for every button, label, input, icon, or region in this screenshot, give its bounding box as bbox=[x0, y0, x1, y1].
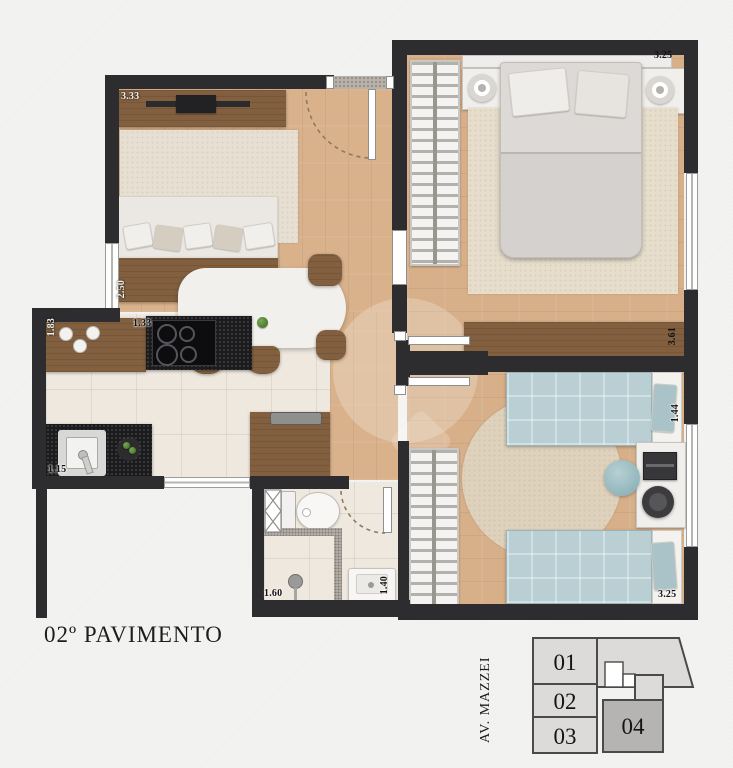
bedroom1-dresser bbox=[464, 322, 684, 359]
toilet-tank bbox=[281, 491, 296, 532]
dim-bath-width: 1.60 bbox=[264, 589, 282, 599]
entry-door-leaf bbox=[368, 89, 376, 160]
sliding-door-jamb-bottom bbox=[394, 385, 406, 395]
entry-threshold bbox=[334, 76, 392, 89]
mug bbox=[59, 327, 73, 341]
wall-bedrooms-divider bbox=[470, 356, 684, 372]
dining-chair bbox=[316, 330, 346, 360]
wall-bedroom1-left-b bbox=[392, 285, 407, 333]
keyplan-unit-03-label: 03 bbox=[554, 724, 577, 749]
wall-bedroom2-bottom bbox=[398, 604, 698, 620]
laptop-keyboard-line bbox=[646, 464, 674, 467]
window-bedroom2 bbox=[686, 424, 698, 547]
tv-unit bbox=[176, 95, 216, 113]
wall-left-spur bbox=[36, 489, 47, 618]
shower-head bbox=[288, 574, 303, 589]
bedroom1-sliding-door-panel bbox=[408, 336, 470, 345]
keyplan-core-notch bbox=[623, 674, 635, 687]
bedroom1-wardrobe bbox=[410, 60, 460, 266]
beanbag-pouf bbox=[604, 460, 640, 496]
dim-living-width: 3.33 bbox=[121, 92, 139, 102]
table-lamp-right bbox=[646, 76, 674, 104]
bedroom1-pocket-door bbox=[392, 230, 407, 285]
sliding-door-jamb-top bbox=[394, 331, 406, 341]
twin-bed-bottom-pillow bbox=[650, 541, 677, 591]
bathroom-door-leaf bbox=[383, 487, 392, 533]
sofa-pillow bbox=[122, 222, 154, 250]
dim-living-depth: 2.50 bbox=[117, 280, 127, 298]
wall-bathroom-bottom bbox=[252, 600, 410, 617]
twin-bed-top bbox=[506, 372, 652, 446]
toilet-flush-button bbox=[302, 508, 311, 517]
mug bbox=[73, 339, 87, 353]
wall-bathroom-top bbox=[264, 476, 349, 489]
dim-bath-depth: 1.40 bbox=[380, 576, 390, 594]
herbs-on-plate bbox=[129, 447, 136, 454]
entry-door-jamb-right bbox=[386, 76, 394, 89]
window-bedroom1 bbox=[686, 173, 698, 290]
dining-chair bbox=[308, 254, 342, 286]
shower-partition-v bbox=[334, 528, 342, 604]
keyplan: 01 02 03 04 bbox=[488, 630, 733, 768]
dim-desk-width: 1.44 bbox=[671, 404, 681, 422]
bathroom-faucet bbox=[368, 582, 374, 588]
wall-bathroom-left bbox=[252, 476, 264, 617]
dim-bedroom1-width: 3.25 bbox=[654, 51, 672, 61]
keyplan-core-notch bbox=[605, 662, 623, 687]
cooktop-burner bbox=[156, 344, 178, 366]
dim-bedroom2-width: 3.25 bbox=[658, 590, 676, 600]
keyplan-unit-01-label: 01 bbox=[554, 650, 577, 675]
sofa-pillow bbox=[242, 222, 275, 250]
wall-bedroom1-top bbox=[392, 40, 698, 55]
sofa-pillow bbox=[152, 224, 183, 252]
wall-right-b bbox=[684, 290, 698, 424]
wall-kitchen-left bbox=[32, 308, 46, 489]
floor-title: 02º PAVIMENTO bbox=[44, 622, 223, 648]
wall-right-a bbox=[684, 55, 698, 173]
hall-cabinet-tray bbox=[270, 412, 322, 425]
floorplan-page: { "title": "02º PAVIMENTO", "dimensions"… bbox=[0, 0, 733, 768]
twin-bed-bottom bbox=[506, 530, 652, 604]
mug bbox=[86, 326, 100, 340]
bedroom2-sliding-door-panel bbox=[408, 377, 470, 386]
plant-pot bbox=[257, 317, 268, 328]
window-kitchen bbox=[164, 477, 250, 488]
dim-kitchen-counter: 1.15 bbox=[48, 465, 66, 475]
double-bed-duvet bbox=[501, 152, 641, 257]
dim-kitchen-width: 1.83 bbox=[47, 318, 57, 336]
sliding-door-wall-stub-h bbox=[396, 351, 488, 375]
dim-cooktop-width: 1.33 bbox=[133, 319, 151, 329]
cooktop-burner bbox=[180, 346, 197, 363]
desk-chair-cushion bbox=[649, 493, 667, 511]
wall-bedroom1-left-a bbox=[392, 55, 407, 230]
wall-kitchen-bottom bbox=[32, 476, 164, 489]
wall-living-top bbox=[105, 75, 334, 89]
shower-partition-h bbox=[264, 528, 342, 536]
window-living-left bbox=[105, 243, 119, 309]
cooktop-burner bbox=[157, 324, 177, 344]
wall-bathroom-right bbox=[398, 441, 409, 617]
cooktop-burner bbox=[179, 326, 195, 342]
keyplan-unit-04-label: 04 bbox=[622, 714, 646, 739]
entry-door-jamb-left bbox=[326, 76, 334, 89]
table-lamp-left bbox=[468, 74, 496, 102]
bedroom2-wardrobe bbox=[409, 448, 459, 606]
dim-bedroom1-depth: 3.61 bbox=[668, 327, 678, 345]
keyplan-unit-02-label: 02 bbox=[554, 689, 577, 714]
bed-pillow bbox=[574, 70, 630, 118]
bed-pillow bbox=[508, 67, 570, 117]
sofa-pillow bbox=[182, 222, 213, 250]
sofa-pillow bbox=[212, 224, 243, 252]
